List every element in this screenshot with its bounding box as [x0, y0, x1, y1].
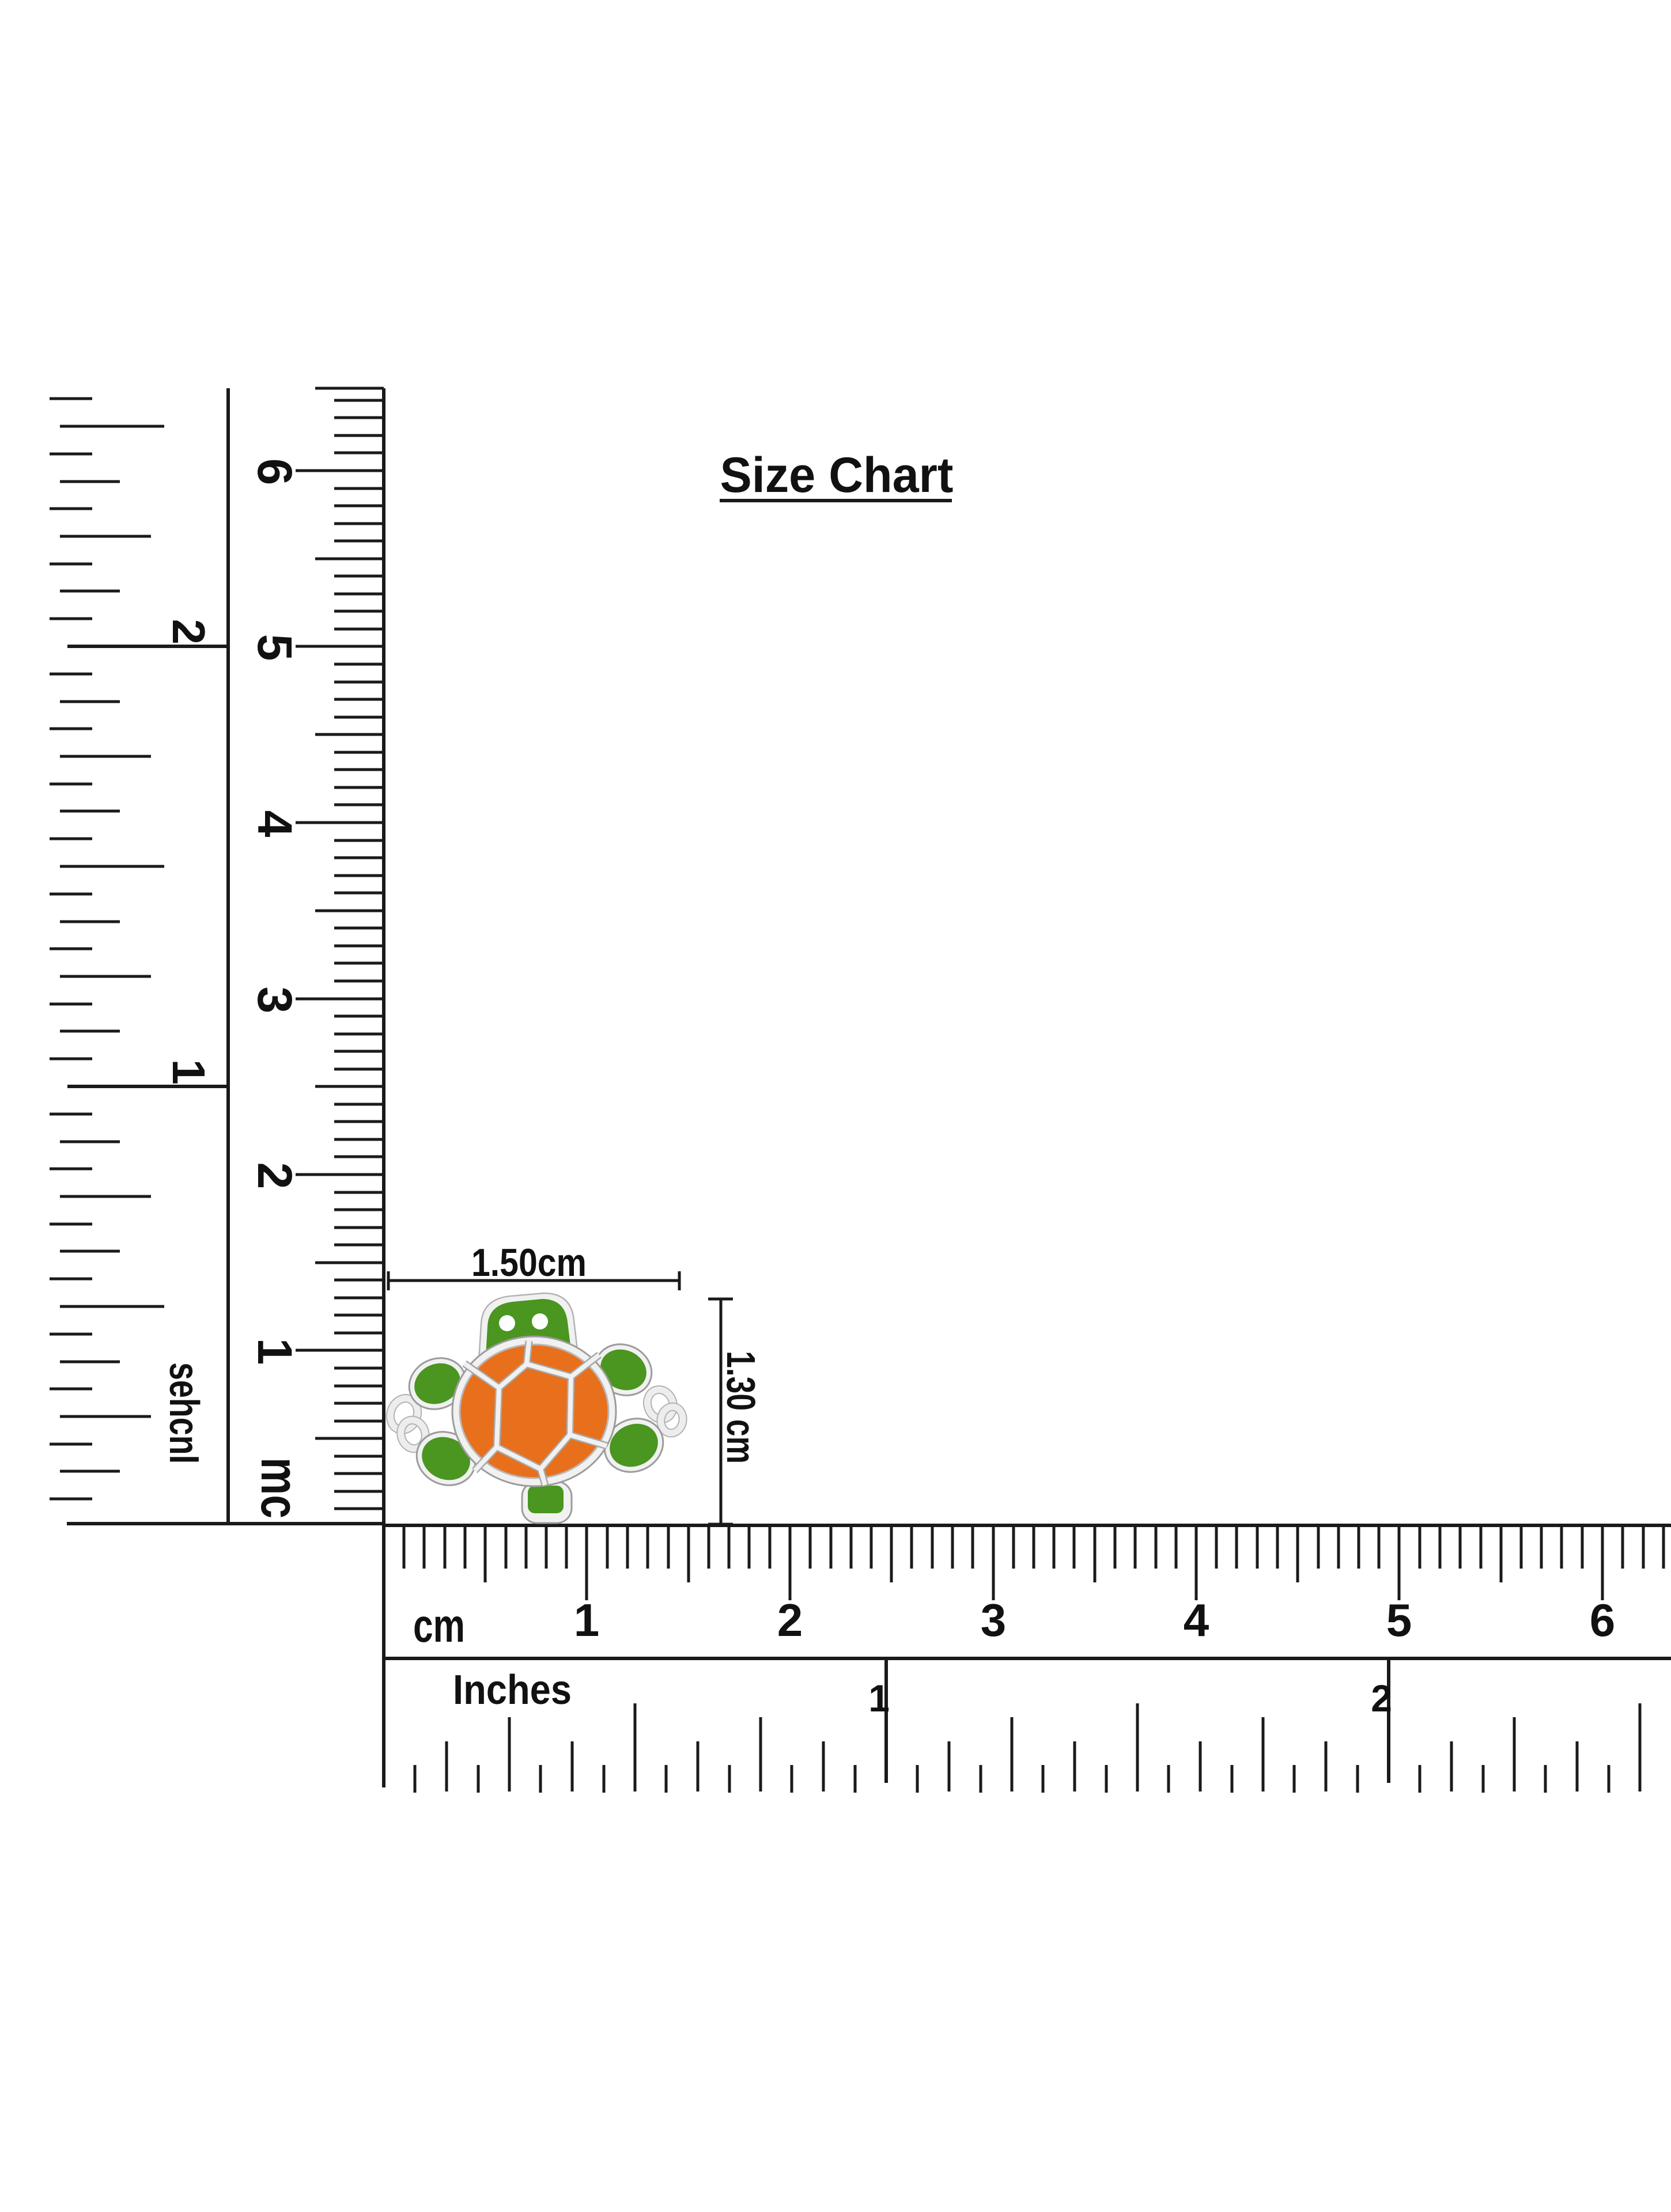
svg-text:3: 3	[981, 1594, 1007, 1646]
svg-text:5: 5	[248, 634, 302, 661]
svg-text:1: 1	[868, 1677, 890, 1719]
svg-text:6: 6	[248, 459, 302, 486]
svg-text:1: 1	[248, 1338, 302, 1365]
svg-text:sehcnI: sehcnI	[161, 1362, 207, 1464]
svg-text:1: 1	[574, 1594, 600, 1646]
svg-text:2: 2	[163, 619, 214, 645]
svg-text:2: 2	[248, 1162, 302, 1190]
svg-text:5: 5	[1386, 1594, 1412, 1646]
svg-text:mc: mc	[250, 1457, 309, 1518]
svg-text:cm: cm	[413, 1600, 465, 1652]
svg-text:4: 4	[1184, 1594, 1209, 1646]
svg-text:3: 3	[248, 987, 302, 1014]
svg-text:1: 1	[163, 1059, 214, 1085]
svg-text:2: 2	[1371, 1677, 1392, 1719]
svg-text:1.30 cm: 1.30 cm	[719, 1351, 763, 1464]
svg-text:1.50cm: 1.50cm	[471, 1241, 587, 1285]
svg-text:Inches: Inches	[453, 1667, 572, 1713]
svg-text:Size Chart: Size Chart	[720, 448, 954, 503]
svg-text:4: 4	[248, 810, 302, 838]
svg-text:2: 2	[777, 1594, 803, 1646]
svg-text:6: 6	[1590, 1594, 1616, 1646]
